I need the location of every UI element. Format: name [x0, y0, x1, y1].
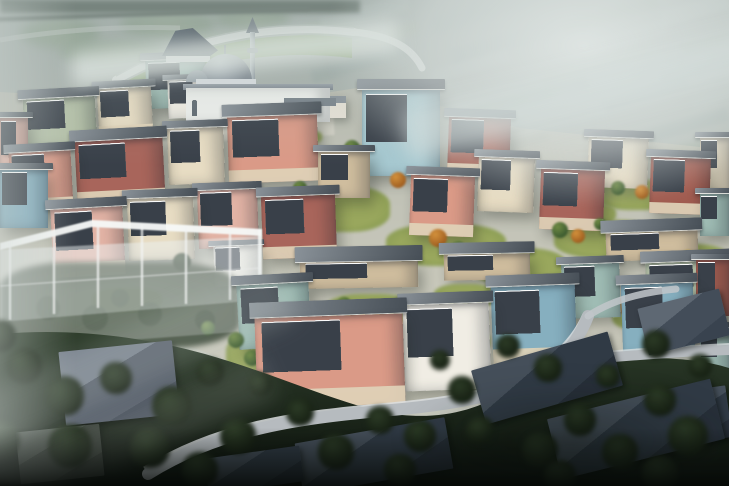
hillside-tree [534, 354, 562, 382]
hillside-tree [544, 460, 576, 486]
window [216, 248, 241, 270]
window [653, 160, 685, 191]
hillside-tree [196, 358, 224, 386]
tree [635, 185, 649, 199]
building-facade [227, 114, 319, 183]
hillside-tree [496, 334, 520, 358]
window [100, 91, 129, 117]
hillside-tree [152, 386, 192, 426]
building-facade [127, 197, 195, 261]
window [321, 155, 348, 180]
hillside-tree [404, 420, 436, 452]
tree [571, 229, 585, 243]
apartment-building [227, 114, 319, 183]
hillside-tree [6, 348, 42, 384]
window [543, 173, 578, 207]
building-facade [167, 127, 225, 185]
building-windows [701, 197, 727, 235]
building-roof [357, 79, 445, 90]
building-windows [130, 201, 191, 259]
hillside-tree [642, 330, 670, 358]
apartment-building [127, 197, 195, 261]
hillside-tree [602, 434, 638, 470]
building-windows [480, 160, 532, 210]
window [54, 212, 93, 251]
window [265, 200, 305, 235]
window [200, 193, 232, 225]
hillside-tree [564, 404, 596, 436]
apartment-building [700, 194, 729, 236]
window [448, 255, 493, 270]
window [413, 179, 448, 213]
window [701, 197, 716, 220]
left-grove [0, 262, 240, 348]
hillside-tree [596, 364, 620, 388]
massing-block [204, 445, 304, 486]
building-windows [366, 95, 436, 172]
architectural-render-canvas [0, 0, 729, 486]
window [262, 321, 341, 372]
hillside-tree [130, 428, 170, 468]
apartment-building [409, 175, 475, 237]
apartment-building [477, 157, 535, 213]
tree [552, 222, 568, 238]
window [79, 143, 127, 179]
building-windows [412, 179, 471, 235]
window [2, 173, 27, 204]
window [366, 95, 407, 141]
window [130, 202, 166, 237]
mosque-dome [200, 54, 252, 81]
building-windows [232, 119, 315, 181]
window [495, 290, 540, 334]
apartment-building [300, 261, 418, 289]
tree [201, 321, 215, 335]
hillside-tree [318, 434, 354, 470]
building-windows [262, 319, 398, 405]
hillside-tree [668, 416, 708, 456]
building-windows [200, 193, 256, 247]
hillside-tree [430, 350, 450, 370]
tree [390, 172, 406, 188]
tree [228, 332, 244, 348]
minaret-balcony [247, 48, 258, 53]
building-facade [0, 170, 48, 228]
building-roof [313, 145, 375, 152]
building-facade [700, 194, 729, 236]
building-windows [306, 263, 413, 288]
window [170, 131, 200, 162]
apartment-building [167, 127, 225, 185]
building-facade [300, 261, 418, 289]
hillside-tree [384, 454, 416, 486]
building-facade [477, 157, 535, 213]
window [610, 233, 659, 250]
hillside-tree [286, 398, 314, 426]
hillside-tree [44, 376, 84, 416]
hillside-tree [466, 416, 494, 444]
hillside-tree [642, 456, 678, 486]
minaret-cap [246, 17, 259, 33]
apartment-building [0, 170, 48, 228]
hillside-tree [448, 376, 476, 404]
building-facade [362, 90, 440, 176]
tree [611, 181, 625, 195]
window [481, 160, 511, 190]
hillside-tree [366, 406, 394, 434]
window [232, 120, 280, 157]
hillside-tree [182, 452, 218, 486]
building-facade [409, 175, 475, 237]
building-windows [542, 173, 601, 229]
hillside-tree [248, 372, 272, 396]
apartment-building [254, 313, 405, 408]
hillside-tree [644, 384, 676, 416]
building-facade [254, 313, 405, 408]
mosque-arch-window [192, 100, 197, 116]
window [306, 263, 368, 278]
building-roof [0, 163, 53, 170]
window [407, 309, 453, 357]
building-windows [170, 130, 222, 182]
building-windows [2, 173, 45, 225]
apartment-building [362, 90, 440, 176]
hillside-tree [100, 362, 132, 394]
hillside-tree [48, 424, 92, 468]
hillside-tree [688, 354, 712, 378]
hillside-tree [220, 418, 256, 454]
